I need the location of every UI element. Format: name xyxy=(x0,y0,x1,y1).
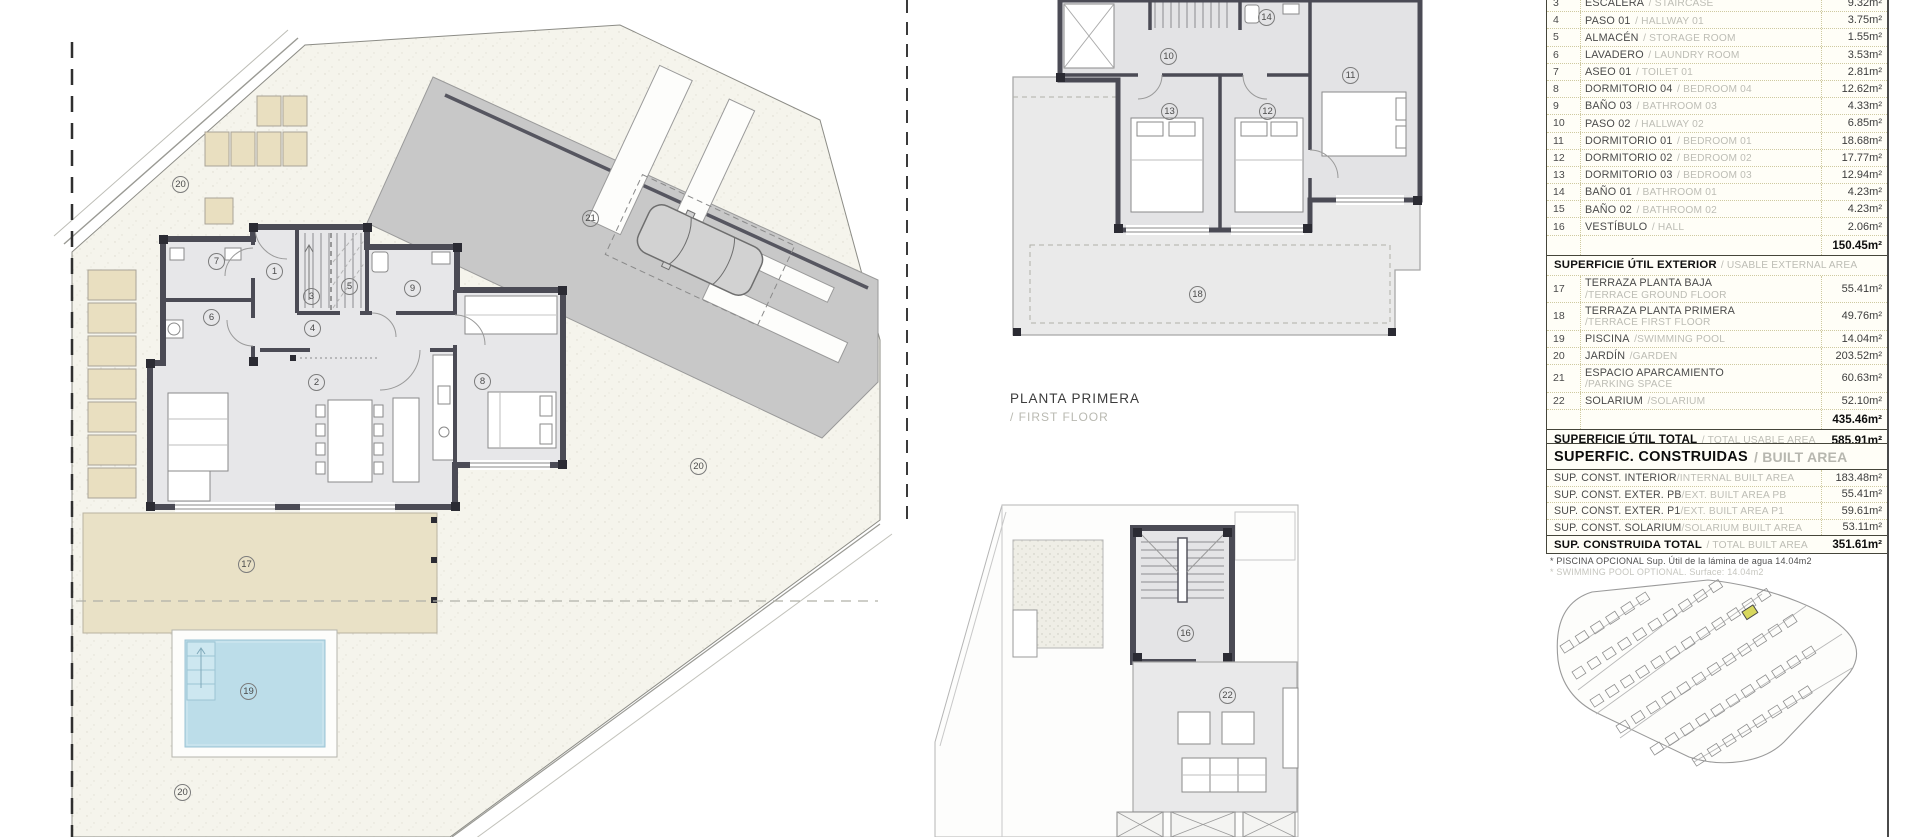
room-label-21: 21 xyxy=(582,210,599,227)
built-area-table: SUPERFIC. CONSTRUIDAS/ BUILT AREA SUP. C… xyxy=(1546,443,1888,554)
room-label-16: 16 xyxy=(1177,625,1194,642)
room-name-es: ESCALERA xyxy=(1585,0,1644,9)
row-area: 4.33m² xyxy=(1821,98,1887,114)
room-name-es: PASO 02 xyxy=(1585,118,1631,130)
room-name-en: / BEDROOM 04 xyxy=(1677,84,1752,95)
room-label-3: 3 xyxy=(303,288,320,305)
room-name-es: PASO 01 xyxy=(1585,15,1631,27)
room-name-es: BAÑO 03 xyxy=(1585,100,1632,112)
row-area: 55.41m² xyxy=(1821,276,1887,303)
room-name-es: ALMACÉN xyxy=(1585,32,1639,44)
room-name-en: / HALL xyxy=(1652,222,1684,233)
row-area: 4.23m² xyxy=(1821,201,1887,217)
room-name-en: /TERRACE GROUND FLOOR xyxy=(1585,290,1821,302)
room-label-19: 19 xyxy=(240,683,257,700)
built-area-val: 53.11m² xyxy=(1821,520,1887,536)
room-name-en: / BEDROOM 02 xyxy=(1677,153,1752,164)
usable-row-19: 19PISCINA /SWIMMING POOL14.04m² xyxy=(1547,330,1887,347)
room-label-20c: 20 xyxy=(174,784,191,801)
usable-area-table: 3ESCALERA / STAIRCASE9.32m² 4PASO 01 / H… xyxy=(1546,0,1888,452)
row-num: 14 xyxy=(1547,184,1581,200)
room-name-es: SOLARIUM xyxy=(1585,395,1643,407)
section-es: SUPERFICIE ÚTIL EXTERIOR xyxy=(1554,259,1717,271)
usable-row-14: 14BAÑO 01 / BATHROOM 014.23m² xyxy=(1547,183,1887,200)
room-label-13: 13 xyxy=(1161,103,1178,120)
row-area: 203.52m² xyxy=(1821,348,1887,364)
room-label-17: 17 xyxy=(238,556,255,573)
room-label-18: 18 xyxy=(1189,286,1206,303)
row-num: 11 xyxy=(1547,133,1581,149)
exterior-section-header: SUPERFICIE ÚTIL EXTERIOR/ USABLE EXTERNA… xyxy=(1547,255,1887,275)
room-name-es: DORMITORIO 02 xyxy=(1585,152,1673,164)
row-num: 13 xyxy=(1547,167,1581,183)
row-num: 19 xyxy=(1547,331,1581,347)
row-area: 2.06m² xyxy=(1821,218,1887,234)
usable-row-16: 16VESTÍBULO / HALL2.06m² xyxy=(1547,217,1887,234)
room-label-6: 6 xyxy=(203,309,220,326)
room-name-en: / HALLWAY 02 xyxy=(1635,119,1704,130)
caption-es: PLANTA PRIMERA xyxy=(1010,391,1140,406)
built-row-exter-p1: SUP. CONST. EXTER. P1/EXT. BUILT AREA P1… xyxy=(1547,502,1887,519)
usable-row-10: 10PASO 02 / HALLWAY 026.85m² xyxy=(1547,114,1887,131)
room-label-11: 11 xyxy=(1342,67,1359,84)
usable-row-13: 13DORMITORIO 03 / BEDROOM 0312.94m² xyxy=(1547,166,1887,183)
built-es: SUP. CONST. EXTER. P1 xyxy=(1554,505,1680,517)
footnote-pool-optional-en: * SWIMMING POOL OPTIONAL. Surface: 14.04… xyxy=(1550,567,1764,577)
room-label-20b: 20 xyxy=(690,458,707,475)
room-name-en: /GARDEN xyxy=(1630,351,1678,362)
row-num: 18 xyxy=(1547,303,1581,330)
usable-row-9: 9BAÑO 03 / BATHROOM 034.33m² xyxy=(1547,97,1887,114)
built-en: /SOLARIUM BUILT AREA xyxy=(1681,523,1802,534)
room-label-1: 1 xyxy=(266,263,283,280)
row-num: 15 xyxy=(1547,201,1581,217)
row-area: 14.04m² xyxy=(1821,331,1887,347)
room-name-en: / BEDROOM 01 xyxy=(1677,136,1752,147)
room-name-es: BAÑO 01 xyxy=(1585,186,1632,198)
row-num: 8 xyxy=(1547,81,1581,97)
built-area-val: 59.61m² xyxy=(1821,503,1887,519)
row-area: 2.81m² xyxy=(1821,64,1887,80)
built-en: /EXT. BUILT AREA P1 xyxy=(1680,506,1784,517)
usable-row-3: 3ESCALERA / STAIRCASE9.32m² xyxy=(1547,0,1887,11)
interior-subtotal-row: 150.45m² xyxy=(1547,235,1887,255)
section-en: / USABLE EXTERNAL AREA xyxy=(1721,260,1858,271)
first-floor-caption: PLANTA PRIMERA / FIRST FLOOR xyxy=(1010,391,1140,424)
room-name-en: / TOILET 01 xyxy=(1636,67,1693,78)
row-num: 7 xyxy=(1547,64,1581,80)
built-total-es: SUP. CONSTRUIDA TOTAL xyxy=(1554,539,1702,551)
built-es: SUP. CONST. SOLARIUM xyxy=(1554,522,1681,534)
row-num: 3 xyxy=(1547,0,1581,11)
built-total-row: SUP. CONSTRUIDA TOTAL / TOTAL BUILT AREA… xyxy=(1547,535,1887,553)
row-area: 4.23m² xyxy=(1821,184,1887,200)
row-num: 22 xyxy=(1547,393,1581,409)
built-total-area: 351.61m² xyxy=(1821,536,1887,553)
room-name-en: / BATHROOM 03 xyxy=(1636,101,1717,112)
usable-row-18: 18TERRAZA PLANTA PRIMERA/TERRACE FIRST F… xyxy=(1547,302,1887,330)
site-location-keyplan xyxy=(1557,580,1856,767)
built-en: /INTERNAL BUILT AREA xyxy=(1677,473,1795,484)
row-num: 6 xyxy=(1547,47,1581,63)
room-label-22: 22 xyxy=(1219,687,1236,704)
exterior-subtotal-row: 435.46m² xyxy=(1547,409,1887,429)
room-label-4: 4 xyxy=(304,320,321,337)
room-name-es: BAÑO 02 xyxy=(1585,204,1632,216)
built-area-val: 183.48m² xyxy=(1821,470,1887,486)
row-num: 17 xyxy=(1547,276,1581,303)
room-name-es: TERRAZA PLANTA PRIMERA xyxy=(1585,305,1735,317)
room-name-es: VESTÍBULO xyxy=(1585,221,1647,233)
room-name-es: JARDÍN xyxy=(1585,350,1625,362)
usable-row-8: 8DORMITORIO 04 / BEDROOM 0412.62m² xyxy=(1547,80,1887,97)
room-name-en: /SOLARIUM xyxy=(1647,396,1705,407)
room-name-en: /PARKING SPACE xyxy=(1585,379,1821,391)
usable-row-21: 21ESPACIO APARCAMIENTO/PARKING SPACE60.6… xyxy=(1547,364,1887,392)
usable-row-15: 15BAÑO 02 / BATHROOM 024.23m² xyxy=(1547,200,1887,217)
usable-row-20: 20JARDÍN /GARDEN203.52m² xyxy=(1547,347,1887,364)
row-num: 9 xyxy=(1547,98,1581,114)
usable-row-17: 17TERRAZA PLANTA BAJA/TERRACE GROUND FLO… xyxy=(1547,275,1887,303)
room-label-10: 10 xyxy=(1160,48,1177,65)
room-label-5: 5 xyxy=(341,278,358,295)
row-area: 6.85m² xyxy=(1821,115,1887,131)
row-area: 60.63m² xyxy=(1821,365,1887,392)
solarium-plan xyxy=(935,505,1298,837)
row-area: 3.75m² xyxy=(1821,12,1887,28)
usable-row-4: 4PASO 01 / HALLWAY 013.75m² xyxy=(1547,11,1887,28)
room-name-en: / BATHROOM 01 xyxy=(1636,187,1717,198)
room-name-es: PISCINA xyxy=(1585,333,1630,345)
room-name-en: / STAIRCASE xyxy=(1649,0,1714,9)
row-area: 17.77m² xyxy=(1821,150,1887,166)
room-name-es: DORMITORIO 04 xyxy=(1585,83,1673,95)
row-num: 5 xyxy=(1547,29,1581,45)
room-label-7: 7 xyxy=(208,253,225,270)
usable-row-7: 7ASEO 01 / TOILET 012.81m² xyxy=(1547,63,1887,80)
usable-row-11: 11DORMITORIO 01 / BEDROOM 0118.68m² xyxy=(1547,132,1887,149)
built-es: SUP. CONST. INTERIOR xyxy=(1554,472,1677,484)
room-name-es: DORMITORIO 03 xyxy=(1585,169,1673,181)
usable-row-22: 22SOLARIUM /SOLARIUM52.10m² xyxy=(1547,392,1887,409)
built-area-val: 55.41m² xyxy=(1821,487,1887,503)
room-name-en: / STORAGE ROOM xyxy=(1643,33,1736,44)
row-area: 52.10m² xyxy=(1821,393,1887,409)
room-name-es: ESPACIO APARCAMIENTO xyxy=(1585,367,1724,379)
room-name-es: LAVADERO xyxy=(1585,49,1644,61)
room-name-es: ASEO 01 xyxy=(1585,66,1631,78)
built-title-es: SUPERFIC. CONSTRUIDAS xyxy=(1554,449,1748,465)
row-area: 12.62m² xyxy=(1821,81,1887,97)
plan-sheet: 1 2 3 4 5 6 7 8 9 17 19 20 20 20 21 10 1… xyxy=(0,0,1920,837)
solarium-deck xyxy=(1133,662,1298,812)
built-total-en: / TOTAL BUILT AREA xyxy=(1707,540,1808,551)
row-area: 3.53m² xyxy=(1821,47,1887,63)
row-num: 21 xyxy=(1547,365,1581,392)
sheet-border xyxy=(1887,0,1889,837)
room-name-en: /TERRACE FIRST FLOOR xyxy=(1585,317,1821,329)
row-num: 12 xyxy=(1547,150,1581,166)
usable-row-5: 5ALMACÉN / STORAGE ROOM1.55m² xyxy=(1547,28,1887,45)
row-area: 1.55m² xyxy=(1821,29,1887,45)
room-label-20a: 20 xyxy=(172,176,189,193)
row-area: 12.94m² xyxy=(1821,167,1887,183)
side-planters xyxy=(88,270,136,498)
row-num: 10 xyxy=(1547,115,1581,131)
usable-row-12: 12DORMITORIO 02 / BEDROOM 0217.77m² xyxy=(1547,149,1887,166)
built-row-exter-pb: SUP. CONST. EXTER. PB/EXT. BUILT AREA PB… xyxy=(1547,486,1887,503)
row-num: 16 xyxy=(1547,218,1581,234)
room-name-en: /SWIMMING POOL xyxy=(1634,334,1725,345)
room-label-12: 12 xyxy=(1259,103,1276,120)
built-es: SUP. CONST. EXTER. PB xyxy=(1554,489,1682,501)
room-name-en: / LAUNDRY ROOM xyxy=(1648,50,1739,61)
usable-row-6: 6LAVADERO / LAUNDRY ROOM3.53m² xyxy=(1547,46,1887,63)
room-label-14: 14 xyxy=(1258,9,1275,26)
built-row-solarium: SUP. CONST. SOLARIUM/SOLARIUM BUILT AREA… xyxy=(1547,519,1887,536)
row-num: 4 xyxy=(1547,12,1581,28)
ground-floor-site-plan xyxy=(54,25,892,837)
built-en: /EXT. BUILT AREA PB xyxy=(1682,490,1787,501)
caption-en: / FIRST FLOOR xyxy=(1010,410,1140,424)
row-area: 49.76m² xyxy=(1821,303,1887,330)
interior-subtotal: 150.45m² xyxy=(1821,236,1887,255)
built-title-en: / BUILT AREA xyxy=(1754,449,1847,465)
exterior-subtotal: 435.46m² xyxy=(1821,410,1887,429)
room-name-es: DORMITORIO 01 xyxy=(1585,135,1673,147)
built-row-interior: SUP. CONST. INTERIOR/INTERNAL BUILT AREA… xyxy=(1547,470,1887,486)
room-label-2: 2 xyxy=(308,374,325,391)
room-name-en: / BEDROOM 03 xyxy=(1677,170,1752,181)
room-label-9: 9 xyxy=(404,280,421,297)
built-table-title: SUPERFIC. CONSTRUIDAS/ BUILT AREA xyxy=(1547,444,1887,470)
row-area: 9.32m² xyxy=(1821,0,1887,11)
room-name-en: / BATHROOM 02 xyxy=(1636,205,1717,216)
room-label-8: 8 xyxy=(474,373,491,390)
room-name-en: / HALLWAY 01 xyxy=(1635,16,1704,27)
row-num: 20 xyxy=(1547,348,1581,364)
ground-terrace xyxy=(83,513,437,633)
room-name-es: TERRAZA PLANTA BAJA xyxy=(1585,277,1712,289)
footnote-pool-optional-es: * PISCINA OPCIONAL Sup. Útil de la lámin… xyxy=(1550,556,1812,566)
row-area: 18.68m² xyxy=(1821,133,1887,149)
